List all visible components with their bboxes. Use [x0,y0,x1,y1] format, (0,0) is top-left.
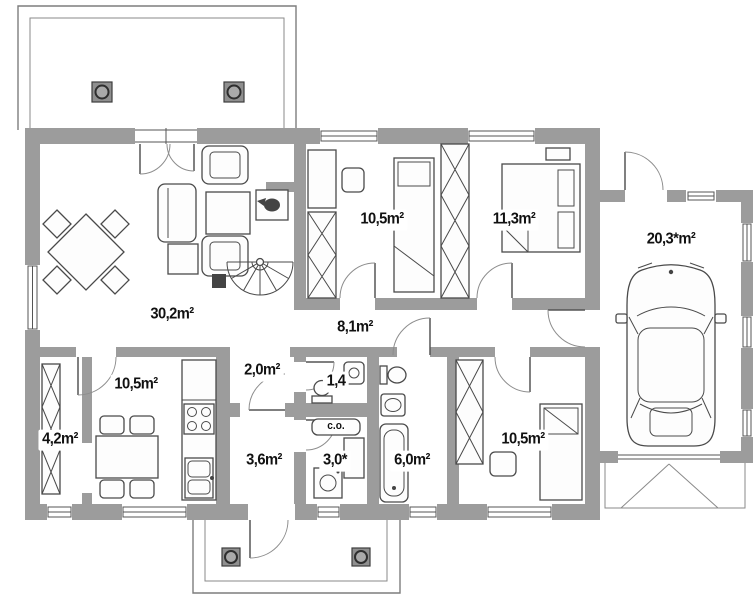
room-label-back-corridor: 3,6m² [242,451,285,472]
stool [342,168,364,192]
room-label-closet: 4,2m² [38,430,81,451]
kitchen-sink-icon [185,458,214,498]
window [741,223,753,262]
window [468,128,535,144]
single-bed [540,404,582,500]
back-door-opening [248,504,295,520]
terrace-door [135,128,197,144]
stove-icon [184,404,214,434]
washing-machine-icon [314,468,342,498]
room-label-hall: 8,1m² [333,318,376,339]
sink-icon [381,394,405,416]
desk [308,150,336,208]
dining-table [43,210,129,294]
room-label-wc: 1,4 [323,372,349,393]
window [741,316,753,348]
terrace-post [222,548,240,566]
double-bed [502,164,580,252]
room-label-kitchen: 10,5m² [111,375,162,396]
stool [490,452,516,476]
garage-door-opening [585,310,600,347]
living-room-furniture [43,146,293,295]
bathroom-fixtures [380,366,408,502]
room-label-bedroom-top-middle: 10,5m² [357,210,408,231]
floor-plan: 30,2m² 10,5m² 4,2m² 2,0m² 1,4 3,6m² 3,0*… [0,0,754,600]
room-label-vestibule: 2,0m² [240,361,283,382]
armchair [202,236,248,276]
window [487,504,552,520]
window [686,190,716,202]
bedroom-top-right-furniture [502,148,580,252]
window [741,409,753,437]
terrace-post [352,548,370,566]
coffee-table [206,192,250,234]
toilet-icon [380,366,406,384]
kitchen-table [96,416,158,498]
nightstand [546,148,570,160]
terrace-post [224,82,244,102]
room-label-garage: 20,3*m² [643,230,699,251]
window [47,504,72,520]
garage-gate [618,451,720,463]
car-icon [616,263,726,446]
terrace-top [18,6,296,130]
room-label-bedroom-top-right: 11,3m² [489,210,539,231]
label-central-heating: c.o. [325,421,346,433]
window [122,504,187,520]
floor-plan-drawing [0,0,754,600]
window [320,128,378,144]
room-label-boiler-room: 3,0* [319,451,350,472]
wardrobe-icon [441,144,469,298]
window [25,265,40,330]
side-table [168,244,198,274]
room-label-living-room: 30,2m² [147,305,198,326]
armchair [202,146,248,184]
wardrobe-icon [456,360,483,464]
driveway [605,463,745,508]
terrace-post [92,82,112,102]
sofa [158,184,196,242]
fireplace-icon [256,190,288,220]
wardrobe-icon [308,212,336,298]
room-label-bedroom-bottom: 10,5m² [498,430,549,451]
window [409,504,437,520]
garage-side-door-opening [625,190,667,202]
terrace-bottom [193,520,400,593]
plant-icon [212,274,226,288]
window [317,504,340,520]
room-label-bathroom: 6,0m² [390,451,433,472]
